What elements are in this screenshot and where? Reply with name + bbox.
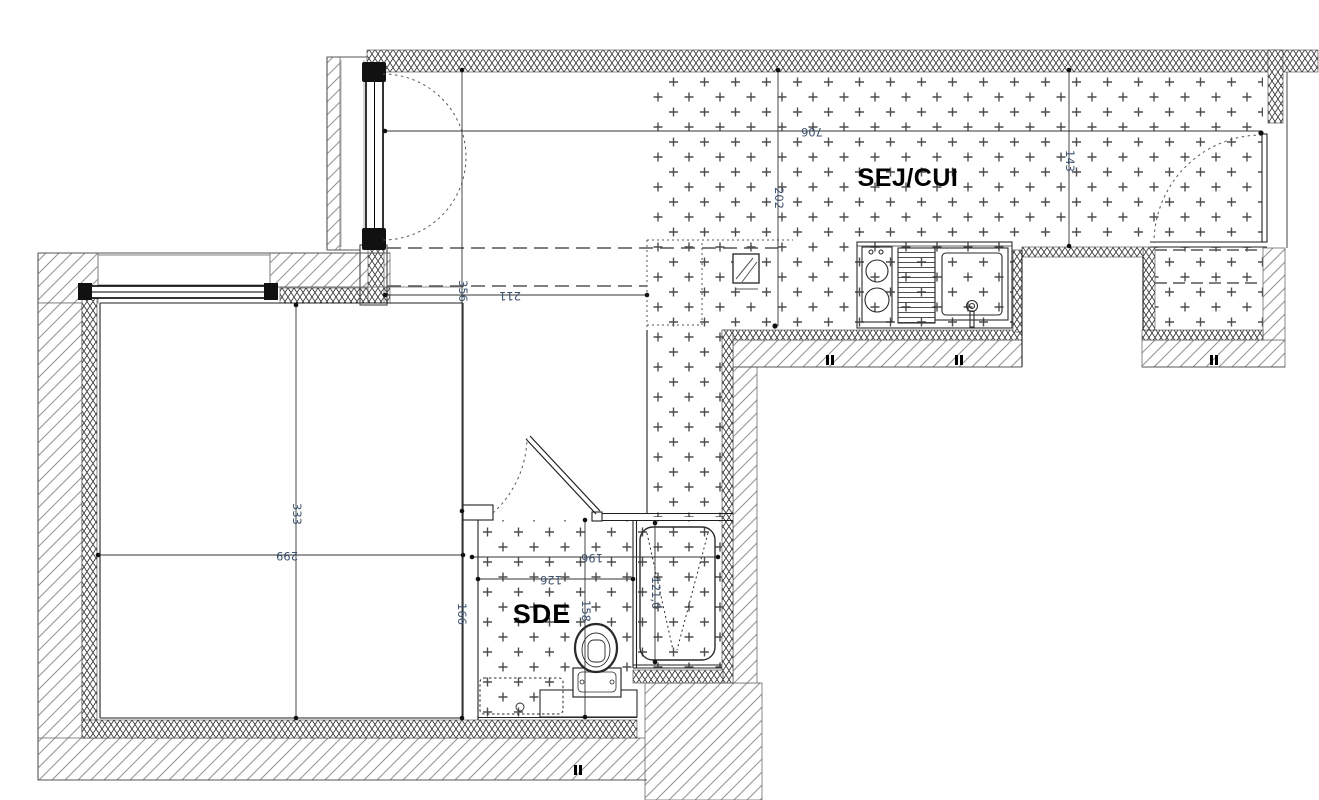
wall-bottom (38, 738, 647, 780)
insulation-left (82, 298, 97, 738)
french-window-head (362, 62, 386, 82)
dim-196: 196 (581, 551, 603, 565)
sde-door-hinge-post (592, 512, 602, 521)
wall-window-jamb (327, 57, 340, 250)
insulation-kitchen-bottom (722, 330, 1022, 340)
insulation-alcove-left (1143, 247, 1155, 330)
draining-board (898, 248, 935, 323)
dim-356: 356 (456, 280, 470, 302)
insulation-top (367, 50, 1318, 72)
dim-202: 202 (772, 187, 786, 209)
wall-alcove-bottom (1142, 340, 1285, 367)
entry-threshold (1150, 242, 1267, 247)
bedroom-outline (100, 303, 463, 718)
dim-211: 211 (499, 289, 521, 303)
wall-alcove-right (1263, 248, 1285, 340)
bedroom-window-end-left (78, 283, 92, 300)
floor-kitchen-strip (722, 242, 1013, 330)
insulation-window-post (368, 249, 384, 303)
floor-sej-main (650, 72, 1263, 242)
insulation-corridor-right (722, 330, 733, 683)
window-reveal-lines (341, 60, 364, 247)
wall-kitchen-bottom (733, 340, 1022, 367)
dim-158: 158 (579, 600, 593, 622)
sde-door-leaf (526, 436, 600, 514)
floor-entry-alcove (1155, 247, 1263, 330)
insulation-alcove-bottom (1142, 330, 1263, 340)
sde-door-swing-arc (493, 438, 527, 513)
floor-shower (633, 521, 722, 668)
wall-corridor-right (733, 340, 757, 683)
insulation-bottom (82, 720, 637, 738)
sde-top-wall (463, 505, 493, 520)
insulation-right-column (1268, 50, 1283, 123)
wall-left (38, 303, 82, 780)
toilet-bowl (575, 624, 617, 672)
bedroom-window-end-right (264, 283, 278, 300)
insulation-shower-bottom (633, 670, 723, 683)
dim-706: 706 (801, 125, 823, 139)
french-window-swing-arc (383, 74, 466, 240)
dim-126: 126 (540, 573, 562, 587)
floor-plan-page: 706 202 143 211 356 299 333 166 196 126 … (0, 0, 1319, 800)
dim-121: 121,0 (649, 577, 663, 610)
wall-bottom-right-block (645, 683, 762, 800)
french-window-foot (362, 228, 386, 250)
floor-corridor (647, 240, 722, 517)
insulation-kitchen-stub (1013, 250, 1022, 332)
dim-299: 299 (276, 549, 298, 563)
entry-door-leaf (1262, 134, 1267, 242)
floor-plan: 706 202 143 211 356 299 333 166 196 126 … (0, 0, 1319, 800)
dim-143: 143 (1063, 150, 1077, 172)
dim-166: 166 (455, 603, 469, 625)
niche-sides (1022, 250, 1143, 367)
insulation-niche-top (1022, 247, 1143, 257)
room-label-sej-cui: SEJ/CUI (858, 164, 959, 192)
room-label-sde: SDE (513, 599, 572, 629)
bedroom-window-sill (98, 255, 270, 285)
dim-333: 333 (290, 503, 304, 525)
